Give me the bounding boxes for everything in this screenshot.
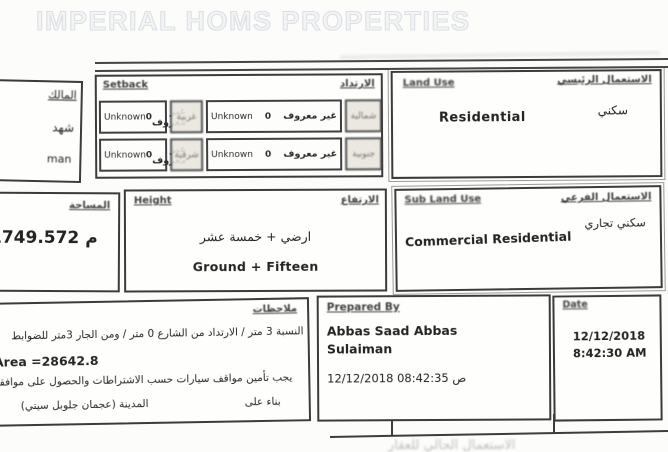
area-title-ar: المساحة <box>69 200 110 211</box>
date-title: Date <box>562 299 587 310</box>
height-box: Height الارتفاع ارضي + خمسة عشر Ground +… <box>124 189 387 293</box>
setback-direction-cell: غربية <box>170 100 203 133</box>
setback-value-cell: Unknown 0 غير معروف <box>206 99 342 133</box>
notes-area-line: Area =28642.8 <box>0 353 99 370</box>
owner-box-fragment: شهد <box>52 120 74 134</box>
notes-line: المدينة (عجمان جلوبل سيتي) <box>21 398 149 412</box>
land-use-box: Land Use الاستعمال الرئيسي Residential س… <box>391 69 663 179</box>
setback-value-en: Unknown <box>211 111 253 121</box>
prepared-by-name: Abbas Saad Abbas <box>327 323 457 339</box>
prepared-by-name: Sulaiman <box>327 341 392 356</box>
owner-box-fragment: man <box>47 152 72 166</box>
notes-line: النسبة 3 متر / الارتداد من الشارع 0 متر … <box>11 325 303 342</box>
table-border-stub <box>553 414 555 434</box>
notes-box: ملاحظات النسبة 3 متر / الارتداد من الشار… <box>0 297 311 427</box>
setback-value-en: Unknown <box>104 112 146 122</box>
setback-value-en: Unknown <box>104 150 146 160</box>
sub-land-use-value-ar: سكني تجاري <box>584 215 646 230</box>
setback-row: Unknown 0 غير معروف شرقية Unknown 0 غير … <box>99 137 382 171</box>
setback-value-cell: Unknown 0 غير معروف <box>99 100 167 133</box>
setback-value-cell: Unknown 0 غير معروف <box>206 137 342 171</box>
land-use-title-en: Land Use <box>403 78 455 89</box>
height-value-en: Ground + Fifteen <box>126 259 385 275</box>
prepared-by-datetime: 12/12/2018 08:42:35 ص <box>327 371 466 386</box>
date-box: Date 12/12/2018 8:42:30 AM <box>552 294 662 421</box>
owner-box: المالك شهد man <box>0 79 83 183</box>
sub-land-use-title-en: Sub Land Use <box>404 194 481 206</box>
height-title-en: Height <box>134 195 172 206</box>
setback-value-num: 0 <box>265 111 271 121</box>
sub-land-use-value-en: Commercial Residential <box>405 229 572 250</box>
land-use-title-ar: الاستعمال الرئيسي <box>557 74 652 86</box>
notes-title-ar: ملاحظات <box>252 303 297 315</box>
area-unit: م <box>85 228 98 248</box>
setback-value-ar: غير معروف <box>283 148 337 159</box>
notes-line: بناء على <box>245 396 281 409</box>
sub-land-use-box: Sub Land Use الاستعمال الفرعي Commercial… <box>394 185 662 292</box>
watermark-title: IMPERIAL HOMS PROPERTIES <box>36 6 471 37</box>
sub-land-use-title-ar: الاستعمال الفرعي <box>561 191 652 203</box>
setback-value-ar: غير معروف <box>283 110 337 121</box>
setback-row: Unknown 0 غير معروف غربية Unknown 0 غير … <box>99 99 382 133</box>
scanned-document: IMPERIAL HOMS PROPERTIES المالك شهد man … <box>0 0 668 452</box>
land-use-value-en: Residential <box>439 110 526 126</box>
height-value-ar: ارضي + خمسة عشر <box>126 229 385 245</box>
setback-direction-cell: شمالية <box>345 99 382 132</box>
setback-title-en: Setback <box>103 79 148 90</box>
setback-direction-cell: شرقية <box>170 138 203 171</box>
area-value-row: م 1749.572 <box>0 228 98 249</box>
setback-value-cell: Unknown 0 غير معروف <box>99 138 167 171</box>
table-border-stub <box>391 420 393 436</box>
area-box: المساحة م 1749.572 <box>0 192 120 293</box>
time-value: 8:42:30 AM <box>573 346 647 361</box>
land-use-value-ar: سكني <box>598 103 628 117</box>
height-title-ar: الارتفاع <box>341 195 379 206</box>
owner-box-fragment: المالك <box>48 88 77 102</box>
prepared-by-box: Prepared By Abbas Saad Abbas Sulaiman 12… <box>317 294 552 421</box>
setback-value-en: Unknown <box>211 149 253 159</box>
prepared-by-title: Prepared By <box>327 301 400 313</box>
setback-box: Setback الارتداد Unknown 0 غير معروف غرب… <box>95 73 384 179</box>
date-value: 12/12/2018 <box>573 329 646 344</box>
area-value: 1749.572 <box>0 228 79 248</box>
faint-footer-text: الاستعمال الحالي للعقار <box>388 438 515 452</box>
setback-title-ar: الارتداد <box>340 78 375 89</box>
setback-value-num: 0 <box>265 149 271 159</box>
notes-line: يجب تأمين مواقف سيارات حسب الاشتراطات وا… <box>0 371 292 388</box>
setback-direction-cell: جنوبية <box>345 137 382 170</box>
table-border-stub <box>330 430 668 438</box>
